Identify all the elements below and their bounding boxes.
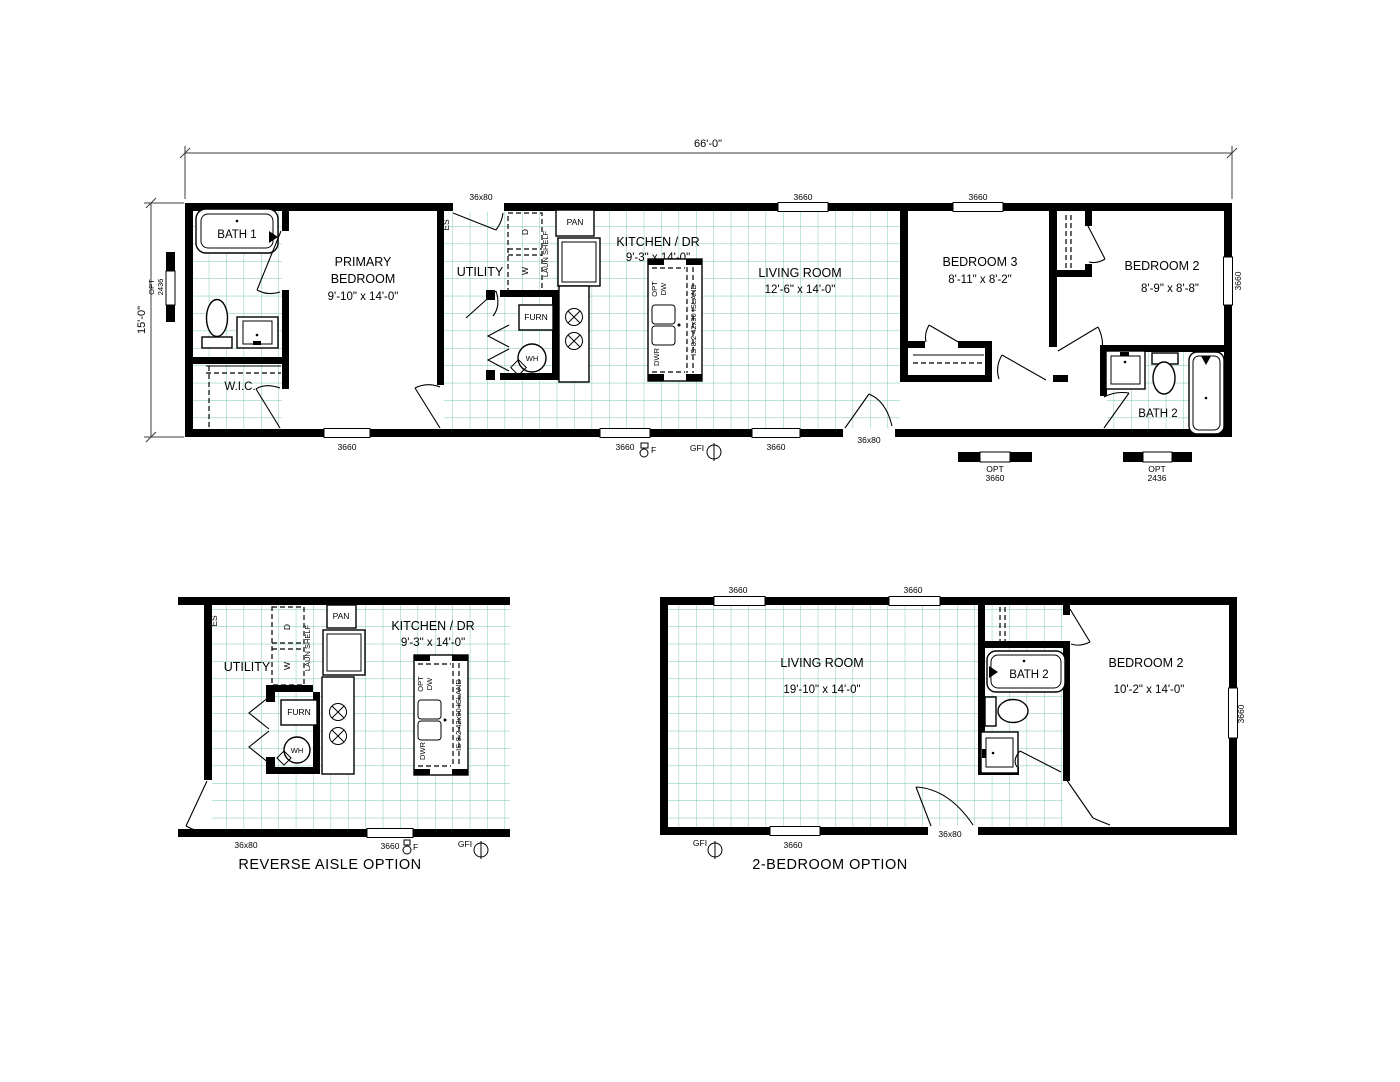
bed2-dims: 8'-9" x 8'-8" xyxy=(1141,283,1199,295)
gfi-symbol: GFI xyxy=(458,839,488,859)
dryer-label: D xyxy=(520,229,530,235)
tub xyxy=(1189,352,1224,434)
counter-range xyxy=(559,286,589,382)
two-bedroom-plan: LIVING ROOM 19'-10" x 14'-0" BEDROOM 2 1… xyxy=(660,585,1246,873)
f-label: F xyxy=(651,445,656,455)
toilet-icon xyxy=(207,300,228,337)
door-size-label: 36x80 xyxy=(234,840,257,850)
island-label: IS-8.2 42x90 ISLAND xyxy=(454,679,463,751)
kitchen-island: OPT DW DWR IS-8.2 42x90 ISLAND xyxy=(414,655,468,775)
bed2-l1: BEDROOM 2 xyxy=(1108,656,1183,670)
wic-label: W.I.C. xyxy=(224,381,255,393)
island-label: IS-8.2 42x90 ISLAND xyxy=(689,284,698,356)
dwr-label: DWR xyxy=(418,741,427,759)
reverse-caption: REVERSE AISLE OPTION xyxy=(238,857,421,873)
opt-size: 2436 xyxy=(156,279,165,296)
window-label: 3660 xyxy=(767,442,786,452)
main-plan: 66'-0" 15'-0" xyxy=(136,138,1243,483)
gfi-symbol: GFI xyxy=(690,443,721,461)
bedroom2: BEDROOM 2 8'-9" x 8'-8" xyxy=(1124,259,1199,295)
f-label: F xyxy=(413,842,418,852)
gfi-label: GFI xyxy=(458,839,472,849)
faucet-symbol: F xyxy=(640,443,656,457)
door-size-label: 36x80 xyxy=(857,435,880,445)
dim-height-label: 15'-0" xyxy=(136,306,148,334)
window-label: 3660 xyxy=(969,192,988,202)
primary-dims: 9'-10" x 14'-0" xyxy=(328,291,399,303)
dw-label: DW xyxy=(659,282,668,295)
utility-label: UTILITY xyxy=(224,660,271,674)
wh-label: WH xyxy=(526,354,539,363)
living-l1: LIVING ROOM xyxy=(758,266,841,280)
furn-label: FURN xyxy=(287,707,311,717)
gfi-symbol: GFI xyxy=(693,838,722,859)
bath1-label: BATH 1 xyxy=(217,229,256,241)
bed3-l1: BEDROOM 3 xyxy=(942,255,1017,269)
toilet-icon xyxy=(998,700,1028,723)
utility-label: UTILITY xyxy=(457,265,504,279)
window-label: 3660 xyxy=(729,585,748,595)
bedroom2: BEDROOM 2 10'-2" x 14'-0" xyxy=(1108,656,1184,696)
dimension-width: 66'-0" xyxy=(180,138,1237,199)
bath2-label: BATH 2 xyxy=(1009,669,1048,681)
gfi-label: GFI xyxy=(693,838,707,848)
dw-label: DW xyxy=(425,677,434,690)
pan-label: PAN xyxy=(333,611,350,621)
laun-shelf-label: LAUN SHELF xyxy=(303,624,312,671)
washer-label: W xyxy=(282,662,292,670)
window-label: 3660 xyxy=(1236,704,1246,723)
entry-side-label: ES xyxy=(441,219,451,231)
washer-label: W xyxy=(520,267,530,275)
floor-plan-drawing: 66'-0" 15'-0" xyxy=(0,0,1400,1082)
twobed-caption: 2-BEDROOM OPTION xyxy=(752,857,907,873)
vanity xyxy=(1106,351,1145,389)
furn-label: FURN xyxy=(524,312,548,322)
kitchen-l1: KITCHEN / DR xyxy=(616,235,699,249)
opt-size: 2436 xyxy=(1148,473,1167,483)
dim-width-label: 66'-0" xyxy=(694,138,722,150)
toilet-tank xyxy=(985,697,996,726)
opt-label: OPT xyxy=(147,279,156,295)
window-label: 3660 xyxy=(338,442,357,452)
primary-l1: PRIMARY xyxy=(335,255,392,269)
opt-window-3660: OPT 3660 xyxy=(958,452,1032,483)
bath2-label: BATH 2 xyxy=(1138,408,1177,420)
bed2-l1: BEDROOM 2 xyxy=(1124,259,1199,273)
door-size-label: 36x80 xyxy=(938,829,961,839)
refrigerator xyxy=(558,238,600,286)
entry-side-label: ES xyxy=(209,615,219,627)
floor-plan-page: 66'-0" 15'-0" xyxy=(0,0,1400,1082)
faucet-symbol: F xyxy=(403,840,418,854)
bed3-dims: 8'-11" x 8'-2" xyxy=(948,274,1011,286)
counter-range xyxy=(322,677,354,774)
door-size-label: 36x80 xyxy=(469,192,492,202)
opening-labels: 36x80 3660 F GFI xyxy=(234,839,488,859)
window-label: 3660 xyxy=(904,585,923,595)
window-label: 3660 xyxy=(1233,271,1243,290)
opt-label: OPT xyxy=(416,676,425,692)
window-label: 3660 xyxy=(784,840,803,850)
primary-l2: BEDROOM xyxy=(331,272,396,286)
opt-size: 3660 xyxy=(986,473,1005,483)
kitchen-island: OPT DW DWR IS-8.2 42x90 ISLAND xyxy=(648,259,702,381)
toilet-tank xyxy=(202,337,232,348)
opt-window-2436: OPT 2436 xyxy=(1123,452,1192,483)
bedroom3: BEDROOM 3 8'-11" x 8'-2" xyxy=(942,255,1017,286)
wh-label: WH xyxy=(291,746,304,755)
opt-label: OPT xyxy=(650,281,659,297)
living-l1: LIVING ROOM xyxy=(780,656,863,670)
pan-label: PAN xyxy=(567,217,584,227)
living-dims: 12'-6" x 14'-0" xyxy=(765,284,836,296)
reverse-aisle-plan: ES UTILITY D W LAUN SHELF PAN KITCHEN / … xyxy=(178,597,510,873)
tile-floor xyxy=(193,211,1224,429)
window-label: 3660 xyxy=(381,841,400,851)
dryer-label: D xyxy=(282,624,292,630)
window-label: 3660 xyxy=(616,442,635,452)
toilet-icon xyxy=(1153,362,1175,394)
dimension-height: 15'-0" xyxy=(136,198,184,442)
kitchen-l1: KITCHEN / DR xyxy=(391,619,474,633)
kitchen-dims: 9'-3" x 14'-0" xyxy=(401,637,465,649)
refrigerator xyxy=(323,630,365,675)
laun-shelf-label: LAUN SHELF xyxy=(541,230,550,277)
dwr-label: DWR xyxy=(652,347,661,365)
primary-bedroom: PRIMARY BEDROOM 9'-10" x 14'-0" xyxy=(328,255,399,303)
living-dims: 19'-10" x 14'-0" xyxy=(783,684,860,696)
bed2-dims: 10'-2" x 14'-0" xyxy=(1114,684,1185,696)
window-label: 3660 xyxy=(794,192,813,202)
gfi-label: GFI xyxy=(690,443,704,453)
